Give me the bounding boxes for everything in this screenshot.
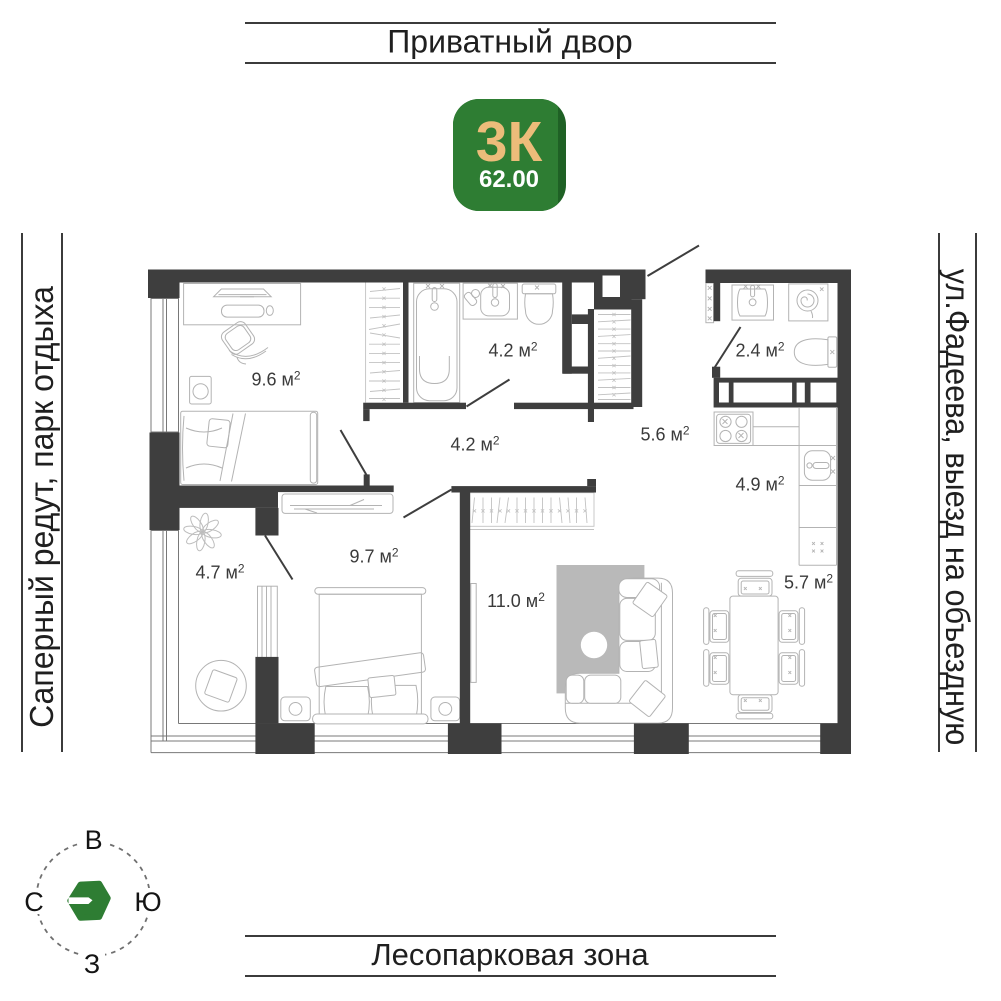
svg-text:2.4 м2: 2.4 м2: [735, 340, 784, 361]
svg-text:4.2 м2: 4.2 м2: [488, 340, 537, 361]
svg-text:9.7 м2: 9.7 м2: [349, 546, 398, 567]
svg-text:4.9 м2: 4.9 м2: [735, 474, 784, 495]
svg-text:4.7 м2: 4.7 м2: [195, 562, 244, 583]
svg-text:5.7 м2: 5.7 м2: [784, 572, 833, 593]
svg-text:11.0 м2: 11.0 м2: [487, 590, 545, 611]
svg-text:5.6 м2: 5.6 м2: [640, 424, 689, 445]
svg-text:9.6 м2: 9.6 м2: [251, 369, 300, 390]
svg-text:4.2 м2: 4.2 м2: [450, 434, 499, 455]
